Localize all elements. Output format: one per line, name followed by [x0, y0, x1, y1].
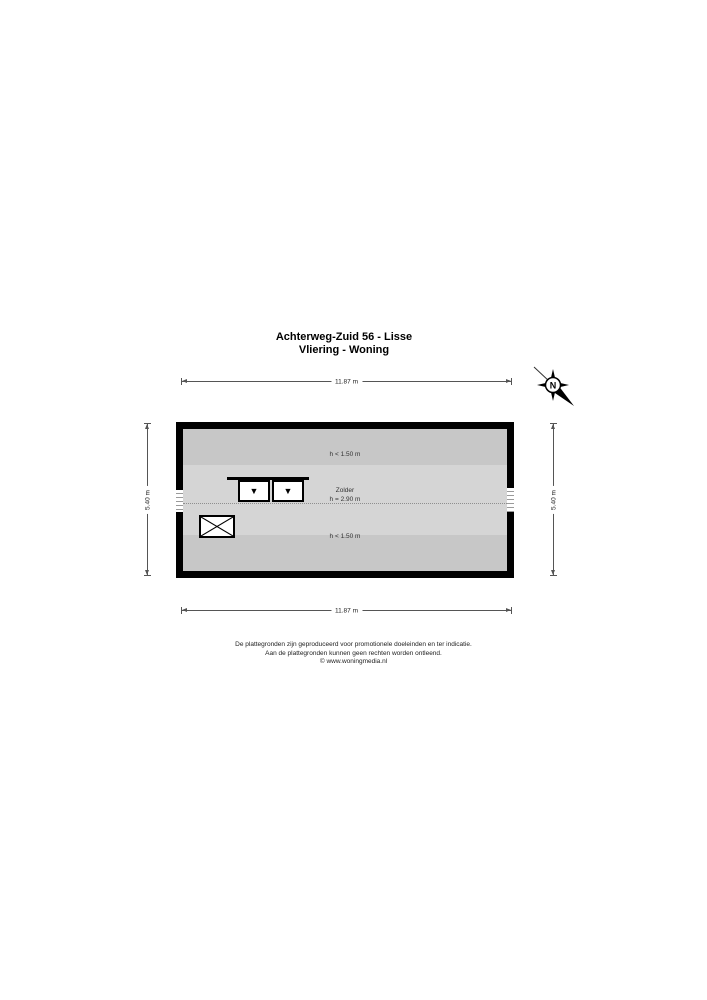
window-arrow-icon: ▼ [250, 487, 259, 496]
gable-window-right [507, 488, 514, 512]
dimension-right: 5.40 m [549, 423, 558, 576]
stair-void [199, 515, 235, 538]
arrow-down-icon [551, 570, 555, 575]
dimension-left: 5.40 m [143, 423, 152, 576]
roof-ridge-line [183, 503, 507, 504]
arrow-up-icon [145, 424, 149, 429]
compass-north-label: N [550, 381, 557, 391]
dimension-top-label: 11.87 m [331, 378, 362, 385]
dimension-tick [550, 575, 557, 576]
low-height-zone-bottom [183, 535, 507, 571]
arrow-left-icon [182, 608, 187, 612]
arrow-down-icon [145, 570, 149, 575]
arrow-left-icon [182, 379, 187, 383]
window-arrow-icon: ▼ [284, 487, 293, 496]
dimension-bottom: 11.87 m [181, 606, 512, 615]
arrow-right-icon [506, 608, 511, 612]
dimension-tick [511, 378, 512, 385]
disclaimer: De plattegronden zijn geproduceerd voor … [0, 641, 707, 667]
page-subtitle: Vliering - Woning [0, 344, 688, 356]
title-block: Achterweg-Zuid 56 - Lisse Vliering - Won… [0, 331, 688, 356]
zone-height-label-top: h < 1.50 m [183, 451, 507, 458]
compass-icon: N [530, 364, 578, 414]
low-height-zone-top [183, 429, 507, 465]
disclaimer-line2: Aan de plattegronden kunnen geen rechten… [0, 650, 707, 659]
disclaimer-line1: De plattegronden zijn geproduceerd voor … [0, 641, 707, 650]
crossed-rectangle-icon [201, 517, 233, 536]
dimension-tick [511, 607, 512, 614]
arrow-right-icon [506, 379, 511, 383]
attic-room: h < 1.50 m Zolder h = 2.90 m h < 1.50 m [183, 429, 507, 571]
zone-height-label-middle: h = 2.90 m [183, 496, 507, 503]
floorplan-page: Achterweg-Zuid 56 - Lisse Vliering - Won… [0, 0, 707, 1000]
dimension-left-label: 5.40 m [144, 486, 151, 514]
dimension-right-label: 5.40 m [550, 486, 557, 514]
roof-window: ▼ [272, 480, 304, 502]
dimension-top: 11.87 m [181, 377, 512, 386]
arrow-up-icon [551, 424, 555, 429]
page-title: Achterweg-Zuid 56 - Lisse [0, 331, 688, 343]
floorplan-canvas: h < 1.50 m Zolder h = 2.90 m h < 1.50 m … [176, 422, 514, 578]
gable-window-left [176, 490, 183, 512]
disclaimer-credit: © www.woningmedia.nl [0, 658, 707, 667]
roof-window: ▼ [238, 480, 270, 502]
room-name-label: Zolder [183, 487, 507, 494]
dimension-bottom-label: 11.87 m [331, 607, 362, 614]
dimension-tick [144, 575, 151, 576]
